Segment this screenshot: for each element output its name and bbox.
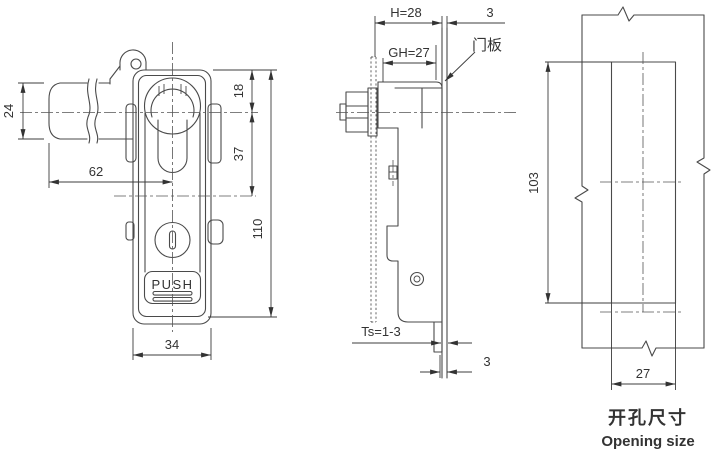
- opening-title-cn: 开孔尺寸: [608, 407, 688, 428]
- side-view: H=28 3 GH=27 门板 Ts=1-3 3: [336, 5, 516, 378]
- dim-label: 3: [486, 5, 493, 20]
- dim-label: 3: [483, 354, 490, 369]
- door-panel-callout: 门板: [445, 36, 502, 81]
- cutout-rect: [545, 62, 676, 390]
- dim-3-bottom: 3: [420, 354, 491, 378]
- dim-label: H=28: [390, 5, 421, 20]
- dim-Ts: Ts=1-3: [352, 324, 472, 343]
- door-panel-lines: [442, 28, 447, 378]
- dim-62: 62: [49, 143, 173, 188]
- dim-label: 18: [231, 84, 246, 98]
- dim-label: 24: [1, 104, 16, 118]
- front-view: PUSH 24 62 18 37: [1, 42, 277, 360]
- dim-label: 34: [165, 337, 179, 352]
- engineering-drawing-page: PUSH 24 62 18 37: [0, 0, 715, 466]
- handle-arm: [49, 79, 133, 143]
- panel-outline: [575, 7, 710, 356]
- door-panel-label: 门板: [472, 36, 502, 54]
- screw-hole: [411, 273, 424, 286]
- opening-view: 103 27 开孔尺寸 Opening size: [526, 7, 710, 450]
- break-line: [87, 79, 90, 143]
- dim-27: 27: [612, 366, 676, 384]
- dim-3-top: 3: [447, 5, 505, 23]
- side-body: [378, 82, 442, 322]
- back-plate-hidden: [371, 57, 376, 322]
- dim-18: 18: [213, 70, 277, 113]
- dim-label: 62: [89, 164, 103, 179]
- dim-GH27: GH=27: [383, 45, 436, 82]
- dim-label: 110: [250, 219, 265, 240]
- tab-collar: [110, 66, 120, 84]
- dim-label: Ts=1-3: [361, 324, 400, 339]
- right-latch-lug: [208, 220, 223, 244]
- dim-103: 103: [526, 62, 548, 303]
- dim-label: 103: [526, 172, 541, 194]
- opening-title-en: Opening size: [601, 433, 694, 450]
- dim-34: 34: [133, 328, 211, 360]
- dim-110: 110: [208, 70, 277, 317]
- dim-label: 27: [636, 366, 650, 381]
- dim-label: GH=27: [388, 45, 430, 60]
- technical-drawing: PUSH 24 62 18 37: [0, 0, 715, 466]
- tab-hole: [131, 59, 141, 69]
- dim-24: 24: [1, 83, 44, 139]
- screw-hole-inner: [414, 276, 420, 282]
- dim-37: 37: [231, 113, 252, 197]
- break-line: [95, 79, 98, 143]
- latch-tongue: [434, 322, 442, 352]
- dim-label: 37: [231, 147, 246, 161]
- set-screw: [389, 160, 397, 186]
